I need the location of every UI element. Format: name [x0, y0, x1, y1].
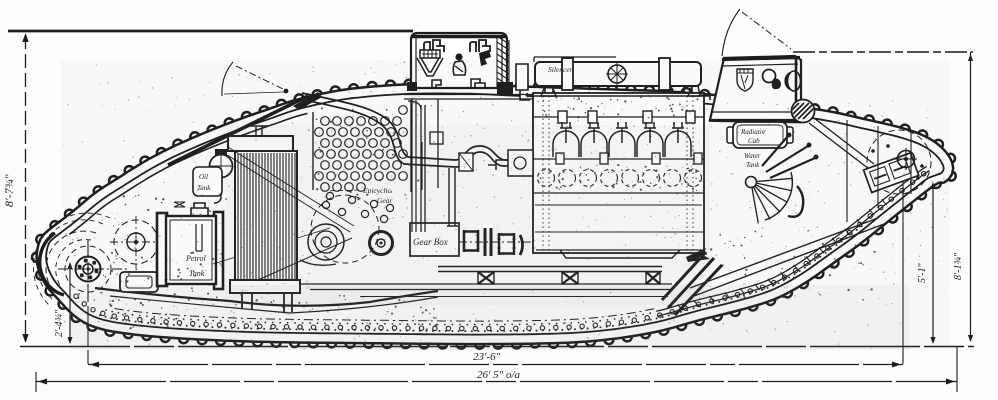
- svg-text:26′ 5″ o/a: 26′ 5″ o/a: [477, 369, 521, 381]
- svg-text:8′-7¾″: 8′-7¾″: [2, 173, 16, 207]
- svg-text:8′-1¾″: 8′-1¾″: [953, 252, 964, 280]
- svg-text:23′-6″: 23′-6″: [473, 351, 501, 363]
